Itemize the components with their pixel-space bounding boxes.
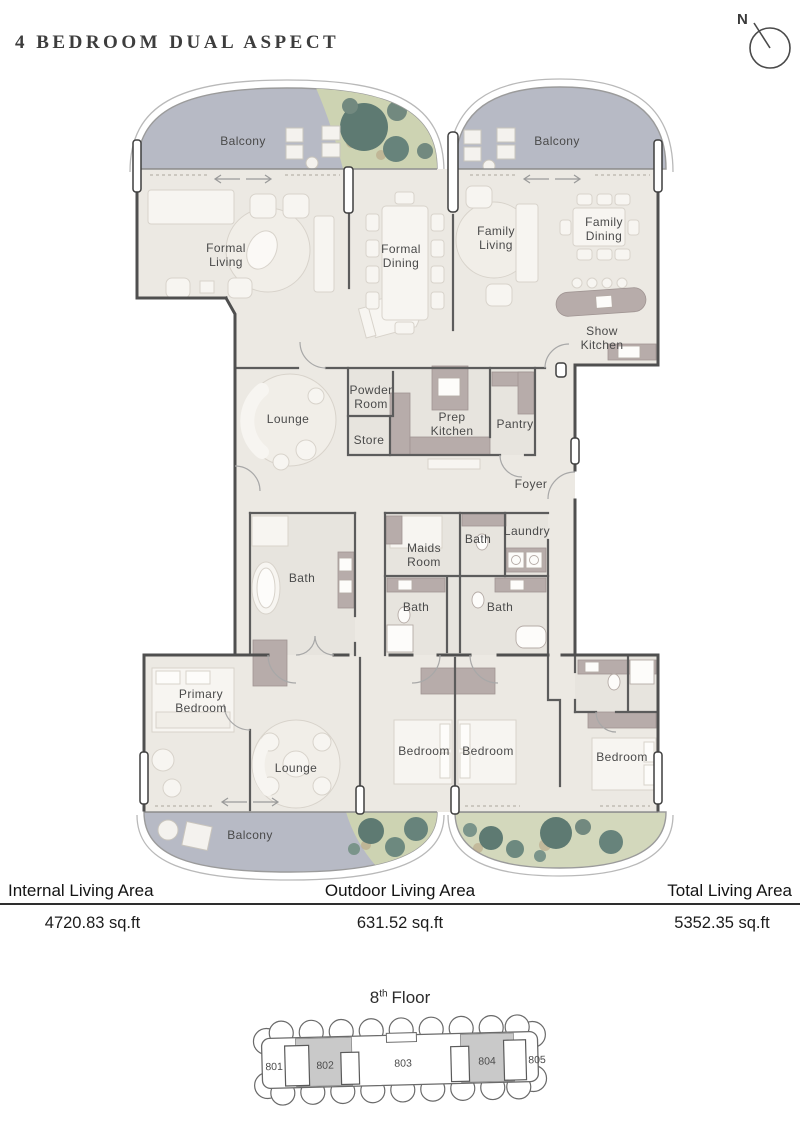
- floorplan-page: 4 BEDROOM DUAL ASPECT N Balcony Balcony …: [0, 0, 800, 1125]
- keyplan-entrance-notch: [386, 1033, 416, 1043]
- compass: N: [723, 2, 800, 77]
- internal-area-value: 4720.83 sq.ft: [10, 914, 175, 933]
- floor-word: Floor: [392, 988, 431, 1007]
- unit-label-805: 805: [528, 1054, 546, 1066]
- floor-suffix: th: [379, 988, 387, 999]
- outdoor-area-value: 631.52 sq.ft: [300, 914, 500, 933]
- internal-area-label: Internal Living Area: [8, 881, 154, 901]
- total-area-value: 5352.35 sq.ft: [647, 914, 797, 933]
- floorplan-drawing: [0, 0, 800, 1125]
- unit-label-801: 801: [265, 1061, 283, 1073]
- unit-label-804: 804: [478, 1055, 496, 1067]
- total-area-label: Total Living Area: [560, 881, 792, 901]
- compass-north-label: N: [737, 11, 748, 28]
- unit-label-803: 803: [394, 1057, 412, 1069]
- unit-label-802: 802: [316, 1060, 334, 1072]
- page-title: 4 BEDROOM DUAL ASPECT: [15, 32, 339, 54]
- floor-number: 8: [370, 988, 379, 1007]
- floor-title: 8thFloor: [320, 988, 480, 1008]
- balcony-top-right-area: [455, 87, 666, 169]
- outdoor-area-label: Outdoor Living Area: [300, 881, 500, 901]
- keyplan-building: 801 802 803 804 805: [249, 1007, 551, 1113]
- stats-divider-line: [0, 903, 800, 905]
